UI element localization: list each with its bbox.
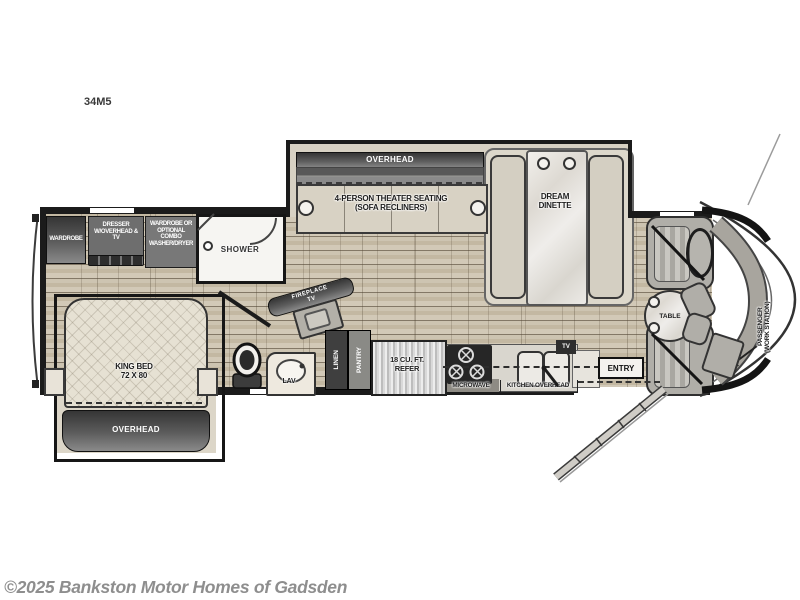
king-bed: [64, 298, 208, 408]
pantry-cabinet: PANTRY: [348, 330, 371, 390]
king-bed-line1: KING BED: [115, 362, 153, 371]
kitchen-overhead-label: KITCHEN OVERHEAD: [498, 382, 578, 389]
dinette-table: [526, 150, 588, 306]
theater-line1: 4-PERSON THEATER SEATING: [335, 194, 448, 203]
dinette-line1: DREAM: [541, 192, 569, 201]
entry-steps: [556, 389, 664, 477]
dinette-bench-right: [588, 155, 624, 299]
wardrobe-optional-cabinet: WARDROBE OR OPTIONAL COMBO WASHER/DRYER: [145, 216, 197, 268]
lav-counter: [266, 352, 316, 396]
floorplan-canvas: 34M5 OVERHEAD 4-PERSON THEATER SEATING (…: [0, 0, 800, 600]
workstation-note: PASSENGER (WORK STATION): [752, 288, 776, 366]
overhead-top-label: OVERHEAD: [297, 156, 483, 165]
fireplace-insert-icon: [303, 308, 331, 332]
copyright-text: ©2025 Bankston Motor Homes of Gadsden: [4, 577, 347, 598]
slide-travel-dashed: [296, 182, 482, 184]
rear-tab: [32, 380, 39, 388]
slide-left-wall: [286, 140, 290, 217]
cupholder-icon: [563, 157, 576, 170]
kitchen-tv-cabinet: TV: [556, 340, 576, 354]
workstation-line2: (WORK STATION): [764, 288, 771, 366]
kitchen-tv-label: TV: [562, 344, 570, 350]
nightstand-left: [44, 368, 65, 396]
driver-seat-cushion: [654, 226, 690, 282]
entry-label: ENTRY: [608, 364, 635, 373]
entry-steps-outline: [556, 389, 664, 477]
microwave-label: MICROWAVE: [440, 382, 502, 389]
cooktop: [447, 345, 492, 384]
king-bed-label: KING BED 72 X 80: [84, 362, 184, 380]
kitchen-overhead-dashed: [443, 366, 600, 368]
shower-label: SHOWER: [200, 245, 280, 254]
linen-label: LINEN: [333, 350, 340, 370]
wardrobe-label: WARDROBE: [47, 236, 85, 243]
dresser-label: DRESSER W/OVERHEAD & TV: [90, 222, 142, 242]
dinette-label: DREAM DINETTE: [524, 192, 586, 210]
rear-cap-line: [33, 214, 39, 388]
fireplace-line2: TV: [307, 296, 317, 304]
slide-right-wall: [628, 140, 632, 217]
theater-line2: (SOFA RECLINERS): [355, 203, 427, 212]
wardrobe-optional-label: WARDROBE OR OPTIONAL COMBO WASHER/DRYER: [147, 221, 195, 247]
cupholder-icon: [648, 296, 660, 308]
bed-overhead-cabinet: OVERHEAD: [62, 410, 210, 452]
theater-seating-label: 4-PERSON THEATER SEATING (SOFA RECLINERS…: [306, 194, 476, 212]
cupholder-icon: [537, 157, 550, 170]
dinette-bench-left: [490, 155, 526, 299]
refer-label: 18 CU. FT. REFER: [371, 356, 443, 373]
step-rail: [560, 394, 668, 482]
dresser-tv-icon: [88, 255, 144, 266]
window-gap-bedroom: [90, 208, 134, 213]
refer-line2: REFER: [395, 364, 419, 373]
workstation-line1: PASSENGER: [757, 288, 764, 366]
table-label: TABLE: [659, 313, 680, 320]
bed-overhead-label: OVERHEAD: [63, 426, 209, 435]
slide-top-wall: [286, 140, 632, 144]
step-treads: [574, 403, 646, 463]
pantry-label: PANTRY: [356, 347, 363, 373]
wardrobe-cabinet: WARDROBE: [46, 216, 86, 264]
king-bed-line2: 72 X 80: [121, 371, 147, 380]
cupholder-icon: [648, 322, 660, 334]
nightstand-right: [197, 368, 218, 396]
dinette-line2: DINETTE: [539, 201, 572, 210]
entry-dashed: [578, 381, 660, 383]
top-wall-rear: [42, 207, 290, 214]
roof-line: [748, 134, 780, 205]
bed-dashed-line: [66, 402, 202, 404]
steering-wheel-icon: [686, 228, 714, 278]
rear-tab: [32, 214, 39, 222]
model-number: 34M5: [84, 96, 112, 108]
linen-cabinet: LINEN: [325, 330, 348, 390]
lav-label: LAV: [267, 378, 311, 386]
entry-label-box: ENTRY: [598, 357, 644, 379]
dresser-cabinet: DRESSER W/OVERHEAD & TV: [88, 216, 144, 256]
